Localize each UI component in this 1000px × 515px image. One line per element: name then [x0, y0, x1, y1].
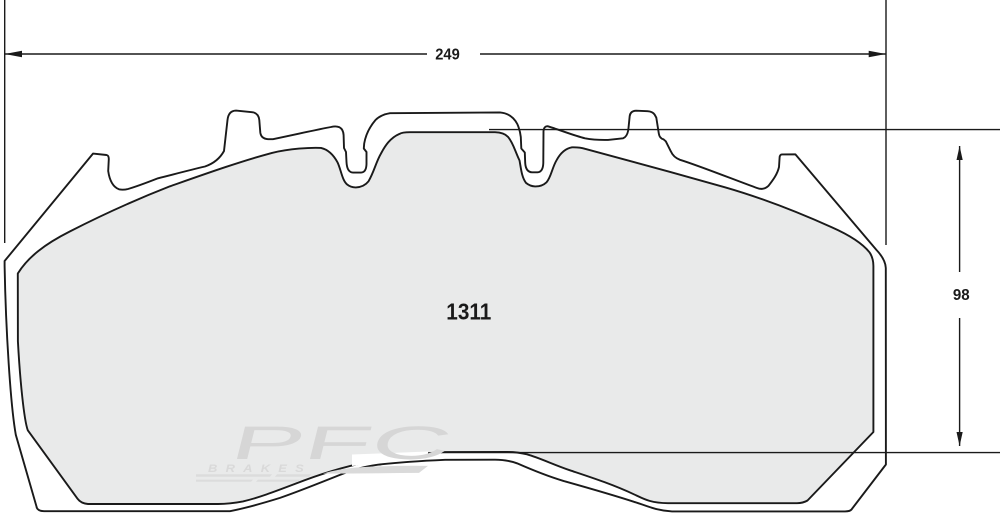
- svg-text:PFC: PFC: [225, 418, 457, 470]
- svg-text:BRAKES: BRAKES: [208, 463, 312, 475]
- svg-text:249: 249: [435, 46, 460, 63]
- svg-text:1311: 1311: [446, 299, 491, 325]
- svg-text:98: 98: [953, 287, 970, 304]
